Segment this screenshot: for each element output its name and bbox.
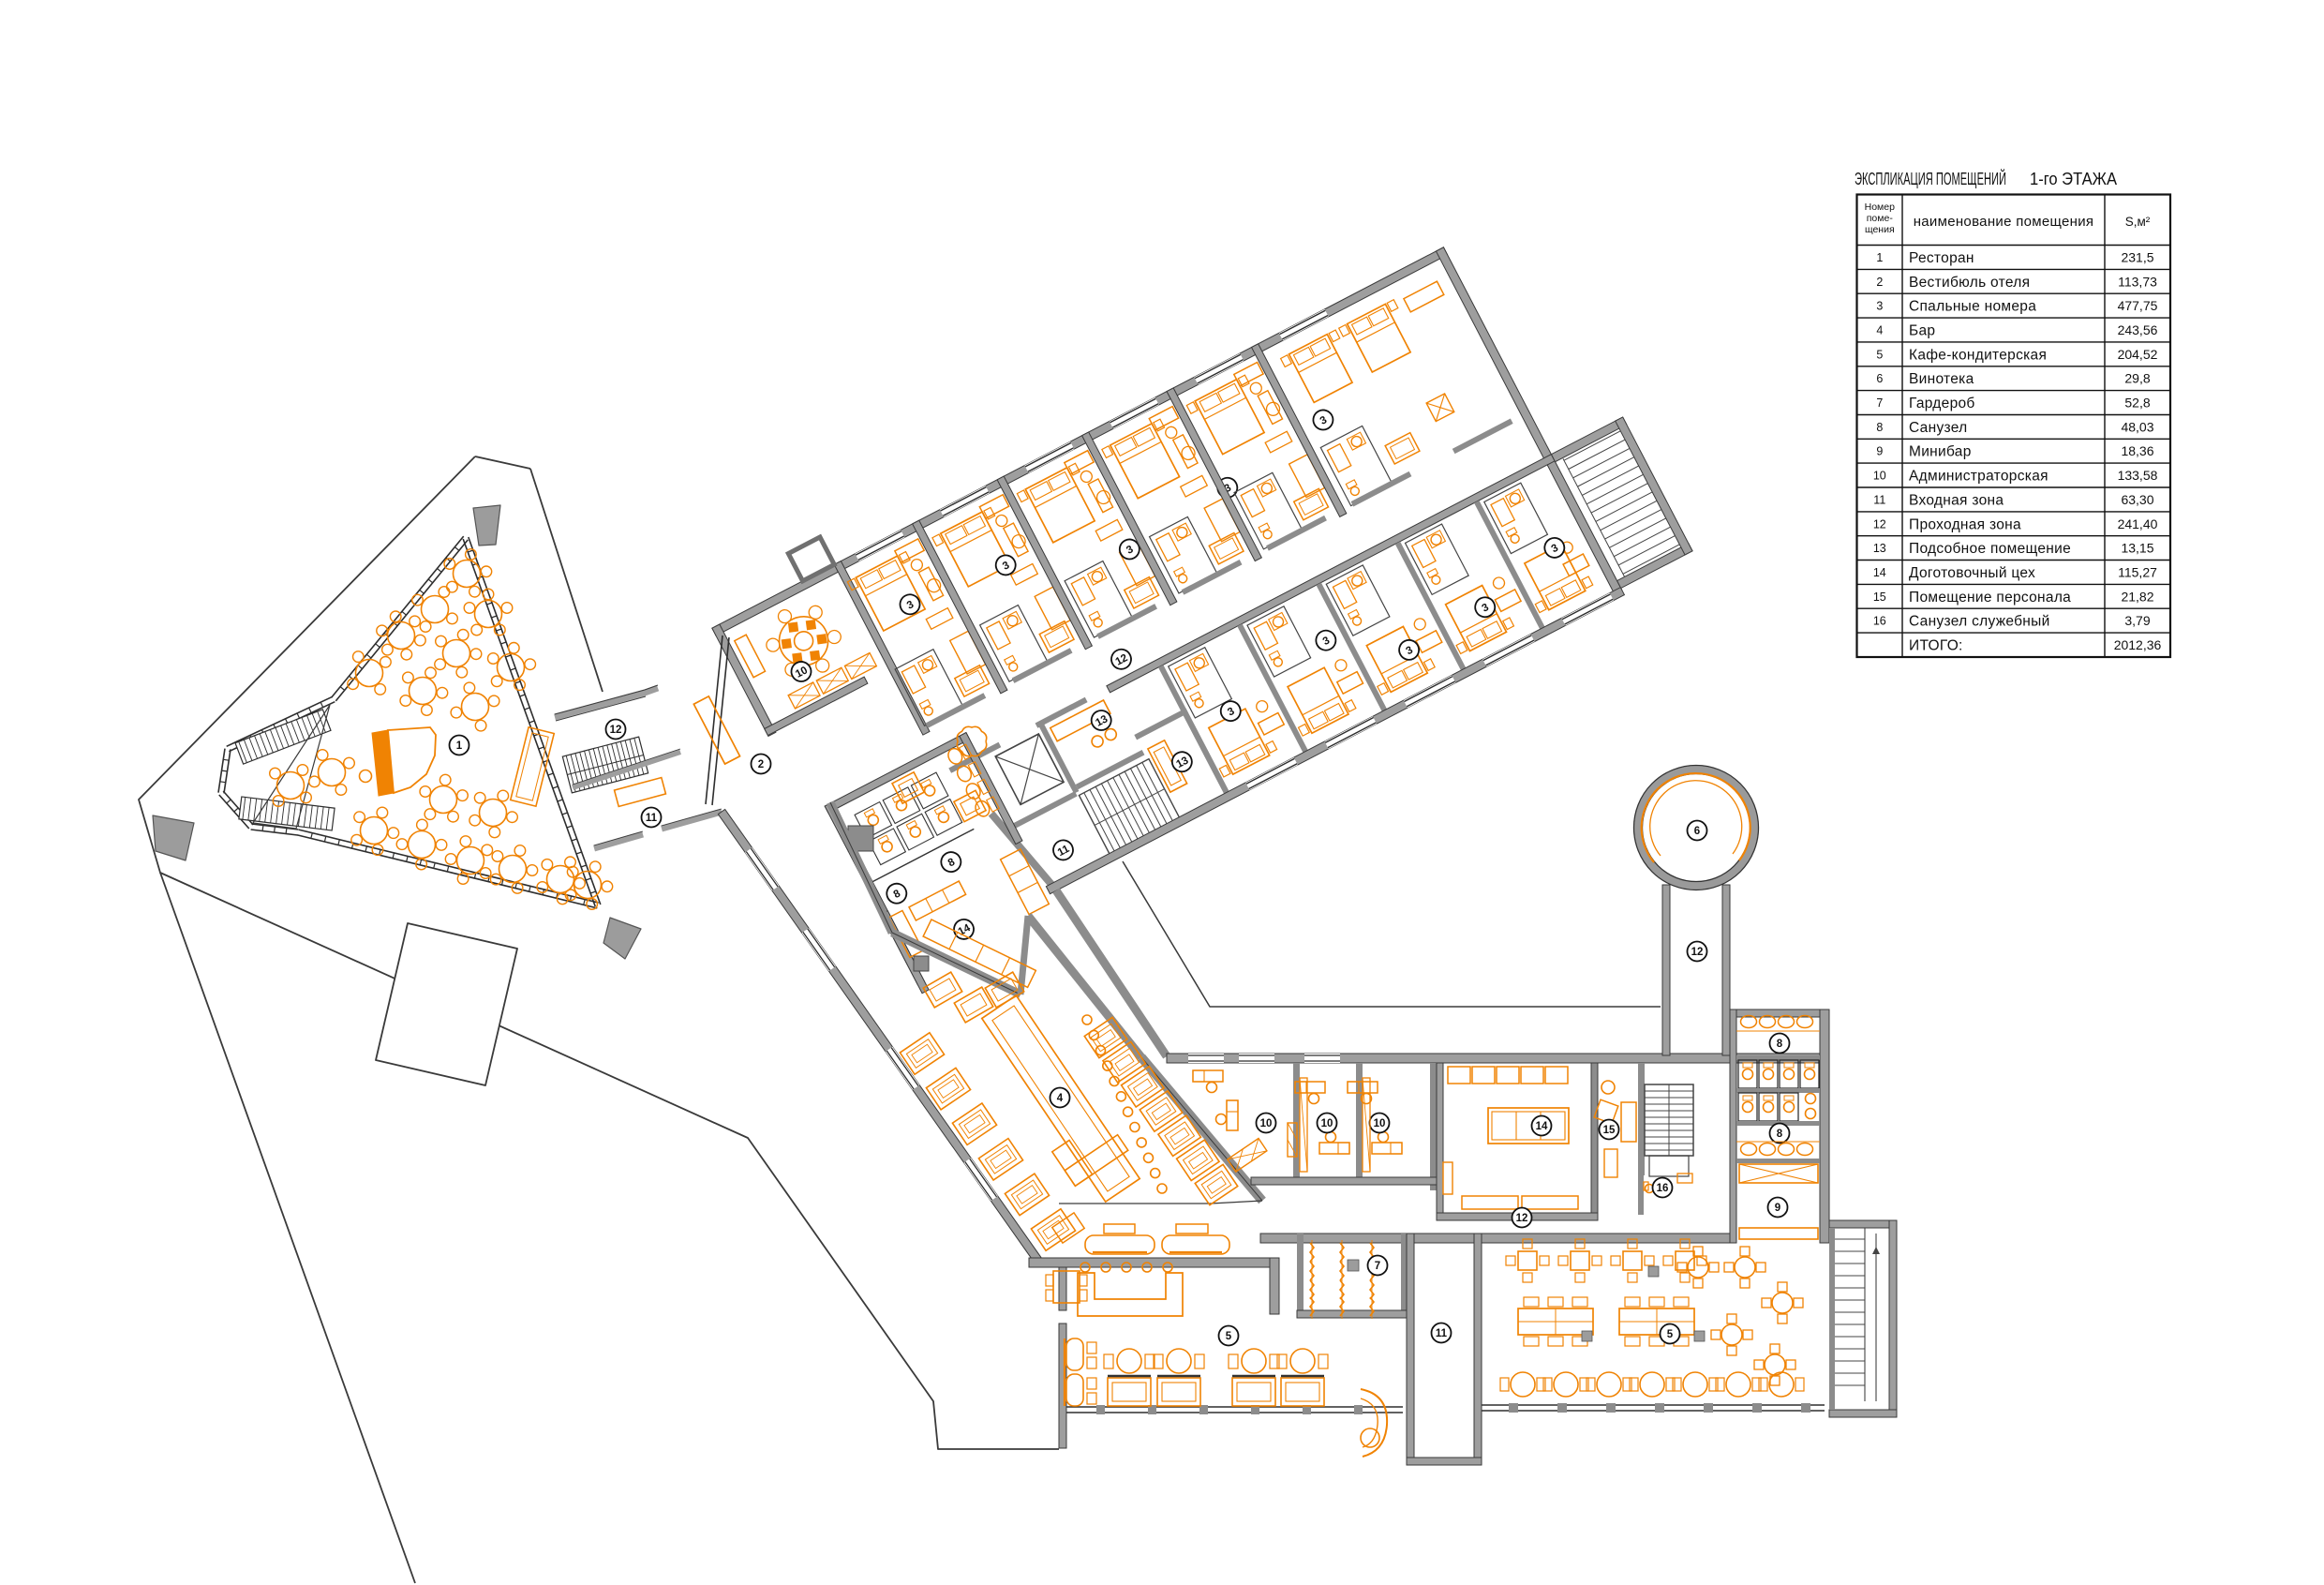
svg-text:наименование помещения: наименование помещения (1914, 214, 2094, 230)
svg-text:щения: щения (1865, 224, 1895, 235)
svg-text:Номер: Номер (1865, 202, 1895, 213)
svg-text:113,73: 113,73 (2118, 274, 2157, 289)
svg-text:477,75: 477,75 (2118, 298, 2158, 313)
svg-text:52,8: 52,8 (2124, 396, 2150, 411)
svg-text:3: 3 (1876, 300, 1883, 313)
svg-text:18,36: 18,36 (2121, 443, 2153, 458)
svg-text:11: 11 (1436, 1328, 1448, 1339)
svg-text:29,8: 29,8 (2124, 371, 2150, 386)
svg-text:Администраторская: Администраторская (1909, 469, 2048, 485)
svg-text:15: 15 (1603, 1125, 1616, 1136)
svg-text:204,52: 204,52 (2118, 347, 2158, 362)
svg-text:1-го ЭТАЖА: 1-го ЭТАЖА (2030, 169, 2118, 188)
svg-text:13,15: 13,15 (2121, 541, 2153, 556)
svg-text:12: 12 (1516, 1213, 1528, 1224)
svg-text:3,79: 3,79 (2124, 613, 2150, 628)
svg-text:5: 5 (1876, 348, 1883, 361)
svg-text:10: 10 (1260, 1118, 1273, 1129)
svg-text:Проходная зона: Проходная зона (1909, 516, 2021, 532)
svg-text:12: 12 (1873, 517, 1886, 531)
svg-text:8: 8 (1777, 1039, 1783, 1050)
svg-text:13: 13 (1873, 542, 1886, 555)
svg-text:48,03: 48,03 (2121, 419, 2153, 434)
svg-text:16: 16 (1873, 615, 1886, 628)
svg-text:Санузел служебный: Санузел служебный (1909, 614, 2050, 630)
svg-text:133,58: 133,58 (2118, 468, 2158, 483)
svg-text:поме-: поме- (1867, 213, 1894, 224)
svg-text:6: 6 (1876, 372, 1883, 385)
svg-text:2012,36: 2012,36 (2114, 637, 2162, 652)
svg-text:Подсобное помещение: Подсобное помещение (1909, 541, 2071, 557)
svg-text:14: 14 (1536, 1121, 1548, 1132)
svg-text:115,27: 115,27 (2118, 565, 2157, 580)
svg-text:241,40: 241,40 (2118, 516, 2158, 531)
svg-text:Помещение персонала: Помещение персонала (1909, 590, 2071, 606)
svg-text:Гардероб: Гардероб (1909, 396, 1975, 411)
svg-text:Минибар: Минибар (1909, 444, 1972, 460)
svg-text:1: 1 (1876, 251, 1883, 264)
svg-text:Доготовочный цех: Доготовочный цех (1909, 565, 2035, 581)
svg-text:4: 4 (1876, 324, 1883, 337)
svg-text:Спальные номера: Спальные номера (1909, 299, 2036, 315)
svg-text:Бар: Бар (1909, 323, 1935, 339)
svg-text:21,82: 21,82 (2121, 589, 2153, 604)
svg-text:231,5: 231,5 (2121, 249, 2153, 264)
svg-text:Вестибюль отеля: Вестибюль отеля (1909, 275, 2030, 291)
svg-text:7: 7 (1876, 396, 1883, 410)
svg-text:Винотека: Винотека (1909, 371, 1974, 387)
svg-text:Ресторан: Ресторан (1909, 250, 1974, 266)
svg-text:1: 1 (456, 740, 463, 752)
svg-text:Входная зона: Входная зона (1909, 492, 2004, 508)
svg-text:16: 16 (1657, 1183, 1669, 1194)
svg-text:11: 11 (646, 813, 658, 824)
svg-text:243,56: 243,56 (2118, 322, 2158, 337)
svg-text:10: 10 (1321, 1118, 1333, 1129)
svg-text:2: 2 (1876, 276, 1883, 289)
svg-text:14: 14 (1873, 566, 1886, 579)
svg-text:ЭКСПЛИКАЦИЯ ПОМЕЩЕНИЙ: ЭКСПЛИКАЦИЯ ПОМЕЩЕНИЙ (1855, 169, 2006, 188)
svg-text:7: 7 (1375, 1261, 1380, 1272)
svg-text:ИТОГО:: ИТОГО: (1909, 638, 1963, 654)
svg-text:2: 2 (758, 759, 764, 770)
svg-text:11: 11 (1873, 493, 1885, 506)
svg-text:12: 12 (610, 725, 622, 736)
svg-text:5: 5 (1226, 1331, 1232, 1342)
svg-text:4: 4 (1057, 1093, 1064, 1104)
svg-text:12: 12 (1691, 947, 1704, 958)
svg-text:63,30: 63,30 (2121, 492, 2153, 507)
svg-text:8: 8 (1876, 421, 1883, 434)
svg-text:6: 6 (1694, 826, 1700, 837)
svg-text:Санузел: Санузел (1909, 420, 1967, 436)
svg-text:S,м²: S,м² (2125, 215, 2151, 229)
svg-text:5: 5 (1667, 1329, 1674, 1340)
svg-text:10: 10 (1374, 1118, 1386, 1129)
svg-text:10: 10 (1873, 470, 1886, 483)
svg-text:9: 9 (1876, 445, 1883, 458)
svg-text:9: 9 (1775, 1203, 1780, 1214)
svg-text:15: 15 (1873, 591, 1886, 604)
svg-text:8: 8 (1777, 1129, 1783, 1140)
svg-text:Кафе-кондитерская: Кафе-кондитерская (1909, 347, 2047, 363)
